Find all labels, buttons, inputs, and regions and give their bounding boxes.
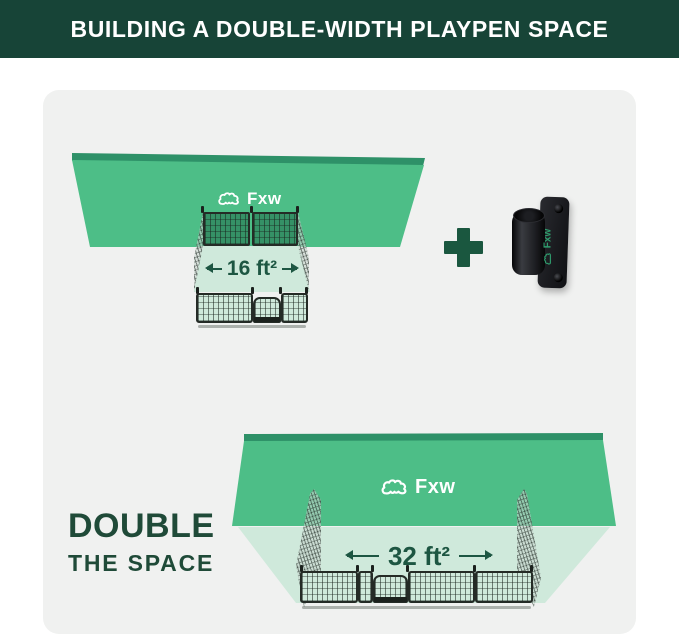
pen-gate — [253, 297, 281, 323]
brand-cloud-icon — [380, 478, 409, 498]
caption-line2: THE SPACE — [68, 552, 215, 575]
back-mesh-panel — [203, 212, 250, 246]
single-playpen: 16 ft² — [190, 203, 365, 328]
fence-panel — [196, 293, 253, 323]
caption-line1: DOUBLE — [68, 509, 215, 543]
wall-mount-bracket: Fxw — [512, 195, 570, 290]
area-value: 32 ft² — [388, 541, 450, 572]
fence-panel — [300, 571, 358, 603]
pen-gate — [373, 575, 408, 603]
front-fence — [196, 290, 308, 326]
fence-panel — [358, 571, 373, 603]
brand-cloud-icon — [544, 252, 553, 265]
caption: DOUBLE THE SPACE — [68, 509, 215, 575]
front-fence — [300, 568, 533, 607]
fence-panel — [281, 293, 308, 323]
brand-logo: Fxw — [380, 476, 455, 499]
arrow-right-icon — [459, 555, 491, 558]
fence-panel — [475, 571, 533, 603]
page: BUILDING A DOUBLE-WIDTH PLAYPEN SPACE Fx… — [0, 0, 679, 638]
arrow-left-icon — [347, 555, 379, 558]
arrow-right-icon — [282, 268, 297, 271]
screw-hole — [554, 273, 563, 282]
diagram-card: Fxw 16 ft² — [43, 90, 636, 634]
plus-icon — [444, 228, 483, 267]
area-value: 16 ft² — [227, 257, 277, 281]
arrow-left-icon — [207, 268, 222, 271]
area-label-single: 16 ft² — [200, 257, 304, 281]
header-banner: BUILDING A DOUBLE-WIDTH PLAYPEN SPACE — [0, 0, 679, 58]
bracket-cylinder — [512, 212, 545, 275]
fence-panel — [408, 571, 475, 603]
back-mesh-panel — [252, 212, 298, 246]
bracket-brand-logo: Fxw — [543, 229, 554, 265]
brand-wordmark: Fxw — [543, 229, 554, 248]
screw-hole — [554, 204, 563, 213]
page-title: BUILDING A DOUBLE-WIDTH PLAYPEN SPACE — [70, 16, 608, 43]
brand-wordmark: Fxw — [415, 476, 455, 499]
